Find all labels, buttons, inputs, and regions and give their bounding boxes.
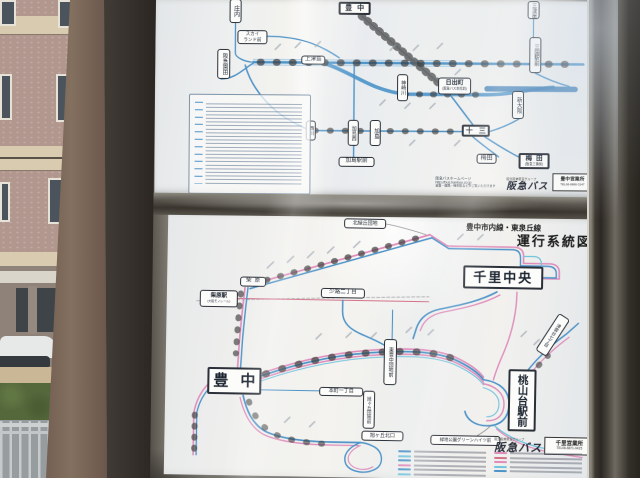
display-case-divider-bar	[150, 193, 602, 220]
station-label: 緑地公園グリーンハイツ前	[440, 438, 491, 443]
legend-row	[494, 461, 582, 465]
station-label: 旭ヶ丘北口	[370, 433, 395, 438]
station-label: 梅田	[481, 156, 493, 162]
station-label: 加島西	[351, 125, 356, 140]
building-column	[28, 286, 37, 334]
station-label: 本町一丁目	[329, 389, 354, 394]
station-label: スカイ	[246, 32, 260, 37]
station-box-asahigaoka-danchi: 旭ヶ丘団地前	[363, 391, 376, 429]
station-box-momoyamadai: 桃山台駅前	[508, 369, 537, 431]
station-label: ランド前	[243, 38, 261, 43]
legend-row	[494, 470, 582, 474]
station-label: 桃山台駅前	[516, 374, 527, 427]
hedge	[0, 383, 56, 424]
station-box-kanzakigawa: 神崎川	[397, 74, 408, 101]
office-phone: TEL06-6866-3147	[560, 183, 584, 187]
station-box-ryokuchi-koen: 緑地公園グリーンハイツ前	[430, 435, 500, 446]
legend-row	[398, 469, 486, 473]
lower-building	[0, 266, 60, 342]
station-box-kashima: 加島	[370, 120, 381, 146]
station-box-shoji: 少路二丁目	[321, 288, 365, 299]
route-legend-notes	[188, 94, 311, 195]
station-box-mikuni-ekimae: 三国駅前	[529, 37, 541, 73]
station-box-toyonaka: 豊中	[339, 2, 371, 15]
station-label: 豊中	[345, 5, 369, 12]
station-label: 阪急園田	[221, 53, 227, 75]
station-label: 加島	[372, 127, 378, 138]
station-box-asahigaoka-kitaguchi: 旭ヶ丘北口	[361, 431, 403, 442]
station-box-kita-midorigaoka: 北緑丘団地	[344, 218, 386, 229]
office-phone: TEL06-6871-0415	[556, 447, 582, 451]
station-box-higashi-toyonaka: 東豊中団地前	[383, 339, 397, 385]
building-beam	[0, 271, 60, 283]
legend-column	[398, 450, 486, 478]
station-box-kashima-nishi: 加島西	[348, 120, 359, 146]
station-label: 庄内	[233, 5, 239, 17]
display-case-right-frame	[587, 0, 640, 478]
station-label: 北緑丘団地	[353, 221, 378, 226]
station-label: 加島駅前	[346, 159, 368, 165]
station-sublabel: (大阪モノレール)	[207, 300, 230, 303]
building-window	[0, 74, 12, 120]
route-color-legend	[398, 450, 594, 478]
map-title-line2: 運行系統図	[486, 234, 592, 251]
white-van	[0, 336, 56, 358]
station-label: 旭ヶ丘団地前	[366, 396, 371, 423]
station-box-senri-chuo: 千里中央	[463, 265, 543, 289]
legend-row	[398, 450, 486, 454]
legend-column	[494, 452, 582, 478]
photo-of-bus-route-display: 豊中 庄内 阪急園田 スカイ ランド前 上津島 神崎川 日出町 (阪急バス本社前…	[0, 0, 640, 478]
station-label: 東豊中団地前	[387, 347, 393, 377]
station-box-sonoda: 阪急園田	[217, 49, 230, 79]
station-sublabel: (阪急三番街)	[525, 163, 543, 166]
station-label: 新大阪	[515, 97, 521, 114]
station-box-toyonaka: 豊中	[207, 367, 261, 395]
station-box-hinodecho: 日出町 (阪急バス本社前)	[438, 77, 471, 94]
building-window	[0, 0, 16, 26]
legend-row	[398, 473, 486, 477]
station-box-kashima-ekimae: 加島駅前	[339, 157, 375, 167]
station-label: 柴原	[246, 279, 263, 285]
homepage-note: 阪急バスホームページ http://bus.hankyu.co.jp 運賃・経路…	[435, 176, 515, 188]
station-label: 神崎川	[400, 80, 405, 95]
station-box-kamitsushima: 上津島	[301, 55, 325, 64]
station-box-umeda-b: 梅田 (阪急三番街)	[519, 153, 550, 169]
station-box-shibahara: 柴原	[240, 276, 266, 286]
station-box-skyland: スカイ ランド前	[237, 30, 267, 44]
van-windows	[0, 356, 50, 367]
station-label: 千里中央	[473, 271, 533, 285]
station-box-mitsuya: 三津屋	[528, 1, 540, 19]
station-label: 十三	[466, 127, 492, 134]
legend-row	[494, 457, 582, 461]
station-box-umeda-a: 梅田	[477, 154, 497, 164]
station-box-shonai: 庄内	[230, 0, 242, 23]
map-title-line1: 豊中市内線・東泉丘線	[466, 223, 541, 233]
top-route-map-poster: 豊中 庄内 阪急園田 スカイ ランド前 上津島 神崎川 日出町 (阪急バス本社前…	[154, 0, 593, 199]
station-label: 豊中	[213, 373, 267, 389]
station-sublabel: (阪急バス本社前)	[442, 88, 466, 91]
legend-row	[398, 459, 486, 463]
building-window	[0, 182, 10, 222]
legend-row	[398, 464, 486, 468]
hankyu-bus-logo: 阪急バス	[506, 182, 548, 193]
station-box-shin-osaka: 新大阪	[512, 91, 524, 119]
bottom-route-map-poster: 豊中市内線・東泉丘線 運行系統図 北緑丘団地 千里中央 柴原 柴原駅 (大阪モノ…	[164, 210, 607, 478]
station-label: 上津島	[305, 57, 322, 63]
homepage-extra: 運賃・経路・時刻表などがご覧いただけます	[435, 185, 515, 189]
legend-row	[494, 452, 582, 456]
legend-row	[494, 466, 582, 470]
building-opening	[16, 288, 60, 332]
station-box-honmachi: 本町一丁目	[319, 387, 363, 397]
station-label: 三津屋	[531, 3, 536, 18]
station-label: 三国駅前	[532, 44, 538, 66]
legend-row	[398, 455, 486, 459]
station-box-juso: 十三	[462, 125, 490, 137]
metal-barrier-fence	[0, 421, 54, 478]
station-label: 少路二丁目	[329, 290, 357, 296]
station-box-shibahara-eki: 柴原駅 (大阪モノレール)	[200, 290, 238, 308]
